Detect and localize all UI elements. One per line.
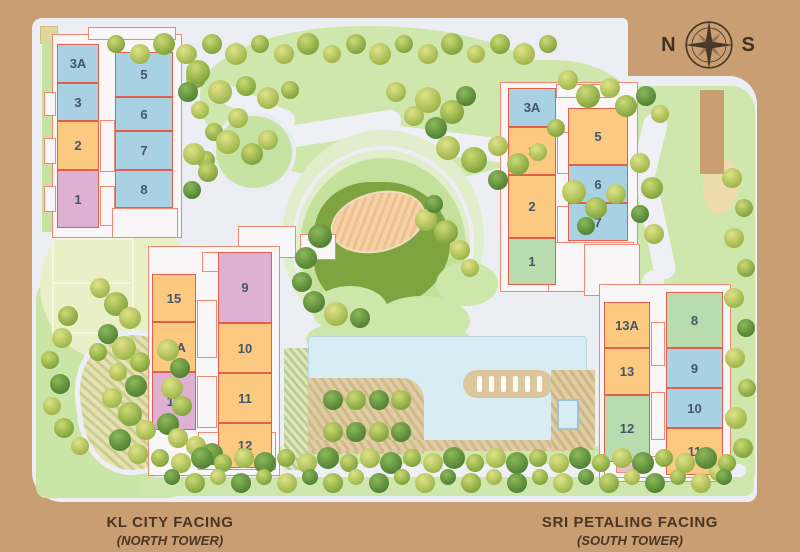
tree-icon	[630, 153, 650, 173]
tree-icon	[164, 469, 180, 485]
tree-icon	[418, 44, 438, 64]
tree-icon	[415, 473, 435, 493]
tree-icon	[198, 162, 218, 182]
tree-icon	[532, 469, 548, 485]
tree-icon	[461, 473, 481, 493]
tree-icon	[346, 390, 366, 410]
tree-icon	[724, 288, 744, 308]
spa-pool	[557, 399, 579, 430]
tree-icon	[130, 44, 150, 64]
tree-icon	[186, 60, 210, 84]
tree-icon	[125, 375, 147, 397]
tree-icon	[490, 34, 510, 54]
tree-icon	[168, 428, 188, 448]
tree-icon	[71, 437, 89, 455]
tree-icon	[486, 469, 502, 485]
tree-icon	[441, 33, 463, 55]
tree-icon	[136, 420, 156, 440]
tree-icon	[725, 407, 747, 429]
tree-icon	[41, 351, 59, 369]
tree-icon	[323, 473, 343, 493]
tree-icon	[89, 343, 107, 361]
tree-icon	[488, 170, 508, 190]
south-tower-caption-line1: SRI PETALING FACING	[518, 514, 742, 531]
tree-icon	[128, 444, 148, 464]
tree-icon	[612, 448, 632, 468]
tree-icon	[256, 469, 272, 485]
tree-icon	[369, 422, 389, 442]
lounge-chair-icon	[513, 376, 518, 392]
tree-icon	[737, 259, 755, 277]
unit-north-tower-3: 3	[57, 83, 99, 121]
tree-icon	[562, 180, 586, 204]
tree-icon	[404, 106, 424, 126]
tree-icon	[733, 438, 753, 458]
tree-icon	[109, 429, 131, 451]
building-structure	[100, 120, 115, 172]
unit-north-tower-11: 11	[218, 373, 272, 423]
tree-icon	[651, 105, 669, 123]
tree-icon	[395, 35, 413, 53]
tree-icon	[369, 390, 389, 410]
lounge-chair-icon	[489, 376, 494, 392]
compass-rose: N S	[654, 16, 762, 74]
tree-icon	[234, 448, 254, 468]
tree-icon	[323, 422, 343, 442]
tree-icon	[258, 130, 278, 150]
tree-icon	[346, 422, 366, 442]
tree-icon	[436, 136, 460, 160]
tree-icon	[547, 119, 565, 137]
tree-icon	[461, 259, 479, 277]
tree-icon	[631, 205, 649, 223]
tree-icon	[440, 469, 456, 485]
map-notch	[700, 90, 724, 174]
tree-icon	[737, 319, 755, 337]
tree-icon	[539, 35, 557, 53]
tree-icon	[251, 35, 269, 53]
unit-south-tower-2: 2	[508, 175, 556, 238]
tree-icon	[507, 153, 529, 175]
tree-icon	[323, 390, 343, 410]
tree-icon	[172, 396, 192, 416]
tree-icon	[216, 130, 240, 154]
north-tower-caption-line2: (NORTH TOWER)	[60, 533, 280, 548]
unit-south-tower-5: 5	[568, 108, 628, 165]
tree-icon	[183, 143, 205, 165]
tree-icon	[529, 143, 547, 161]
tree-icon	[323, 45, 341, 63]
tree-icon	[346, 34, 366, 54]
tree-icon	[151, 449, 169, 467]
tree-icon	[369, 473, 389, 493]
building-structure	[651, 322, 665, 366]
tree-icon	[443, 447, 465, 469]
tree-icon	[738, 379, 756, 397]
lounge-chair-icon	[525, 376, 530, 392]
unit-south-tower-8: 8	[666, 292, 723, 348]
tree-icon	[466, 454, 484, 472]
south-tower-caption-line2: (SOUTH TOWER)	[518, 533, 742, 548]
tree-icon	[50, 374, 70, 394]
tree-icon	[191, 101, 209, 119]
unit-south-tower-10: 10	[666, 388, 723, 428]
unit-south-tower-13A: 13A	[604, 302, 650, 348]
tree-icon	[569, 447, 591, 469]
tree-icon	[228, 108, 248, 128]
tree-icon	[391, 422, 411, 442]
tree-icon	[506, 452, 528, 474]
lounge-chair-icon	[477, 376, 482, 392]
unit-south-tower-13: 13	[604, 348, 650, 395]
unit-north-tower-1: 1	[57, 170, 99, 228]
tree-icon	[513, 43, 535, 65]
tree-icon	[153, 33, 175, 55]
tree-icon	[350, 308, 370, 328]
tree-icon	[183, 181, 201, 199]
tree-icon	[577, 217, 595, 235]
tree-icon	[102, 388, 122, 408]
tree-icon	[553, 473, 573, 493]
tree-icon	[386, 82, 406, 102]
tree-icon	[716, 469, 732, 485]
tree-icon	[257, 87, 279, 109]
building-structure	[112, 208, 178, 238]
tree-icon	[467, 45, 485, 63]
tree-icon	[599, 473, 619, 493]
tree-icon	[585, 197, 607, 219]
tree-icon	[394, 469, 410, 485]
tree-icon	[292, 272, 312, 292]
tree-icon	[274, 44, 294, 64]
tree-icon	[558, 70, 578, 90]
building-structure	[197, 376, 217, 428]
tree-icon	[302, 469, 318, 485]
tree-icon	[295, 247, 317, 269]
tree-icon	[360, 448, 380, 468]
tree-icon	[231, 473, 251, 493]
lounge-chair-icon	[537, 376, 542, 392]
unit-north-tower-15: 15	[152, 274, 196, 322]
tree-icon	[529, 449, 547, 467]
building-structure	[44, 186, 56, 212]
unit-north-tower-8: 8	[115, 170, 173, 208]
tree-icon	[641, 177, 663, 199]
compass-north-label: N	[661, 34, 675, 57]
tree-icon	[624, 469, 640, 485]
unit-north-tower-6: 6	[115, 97, 173, 131]
tree-icon	[308, 224, 332, 248]
tree-icon	[52, 328, 72, 348]
tree-icon	[724, 228, 744, 248]
tree-icon	[670, 469, 686, 485]
unit-south-tower-9: 9	[666, 348, 723, 388]
south-tower-caption: SRI PETALING FACING (SOUTH TOWER)	[518, 514, 742, 548]
tree-icon	[281, 81, 299, 99]
tree-icon	[191, 447, 213, 469]
tree-icon	[391, 390, 411, 410]
tree-icon	[423, 453, 443, 473]
north-tower-caption-line1: KL CITY FACING	[60, 514, 280, 531]
tree-icon	[644, 224, 664, 244]
unit-north-tower-7: 7	[115, 131, 173, 170]
site-plan-map: 3A32156781513A1391011123A32156713A131289…	[0, 0, 800, 552]
building-structure	[44, 138, 56, 164]
unit-north-tower-2: 2	[57, 121, 99, 170]
building-structure	[44, 92, 56, 116]
tree-icon	[277, 473, 297, 493]
tree-icon	[722, 168, 742, 188]
tree-icon	[109, 363, 127, 381]
tree-icon	[236, 76, 256, 96]
tree-icon	[303, 291, 325, 313]
unit-north-tower-3A: 3A	[57, 44, 99, 83]
tree-icon	[170, 358, 190, 378]
building-structure	[651, 392, 665, 440]
tree-icon	[576, 84, 600, 108]
tree-icon	[185, 473, 205, 493]
tree-icon	[549, 453, 569, 473]
tree-icon	[655, 449, 673, 467]
compass-rose-icon	[683, 19, 735, 71]
building-structure	[197, 300, 217, 358]
tree-icon	[578, 469, 594, 485]
tree-icon	[486, 448, 506, 468]
tree-icon	[369, 43, 391, 65]
tree-icon	[735, 199, 753, 217]
tree-icon	[615, 95, 637, 117]
tree-icon	[130, 352, 150, 372]
tree-icon	[461, 147, 487, 173]
tree-icon	[348, 469, 364, 485]
tree-icon	[507, 473, 527, 493]
tree-icon	[297, 33, 319, 55]
tree-icon	[210, 469, 226, 485]
tree-icon	[645, 473, 665, 493]
tree-icon	[450, 240, 470, 260]
unit-north-tower-10: 10	[218, 323, 272, 373]
lounge-chair-icon	[501, 376, 506, 392]
tree-icon	[636, 86, 656, 106]
tree-icon	[58, 306, 78, 326]
tree-icon	[456, 86, 476, 106]
tree-icon	[107, 35, 125, 53]
north-tower-caption: KL CITY FACING (NORTH TOWER)	[60, 514, 280, 548]
tree-icon	[592, 454, 610, 472]
tree-icon	[324, 302, 348, 326]
tree-icon	[43, 397, 61, 415]
tree-icon	[403, 449, 421, 467]
tree-icon	[178, 82, 198, 102]
tree-icon	[606, 184, 626, 204]
tree-icon	[317, 447, 339, 469]
tree-icon	[225, 43, 247, 65]
tree-icon	[691, 473, 711, 493]
tree-icon	[725, 348, 745, 368]
tree-icon	[277, 449, 295, 467]
tree-icon	[600, 78, 620, 98]
tree-icon	[425, 195, 443, 213]
compass-south-label: S	[742, 34, 755, 57]
tree-icon	[695, 447, 717, 469]
unit-north-tower-9: 9	[218, 252, 272, 323]
tree-icon	[202, 34, 222, 54]
tree-icon	[208, 80, 232, 104]
tree-icon	[119, 307, 141, 329]
tree-icon	[54, 418, 74, 438]
unit-south-tower-1: 1	[508, 238, 556, 285]
tree-icon	[488, 136, 508, 156]
